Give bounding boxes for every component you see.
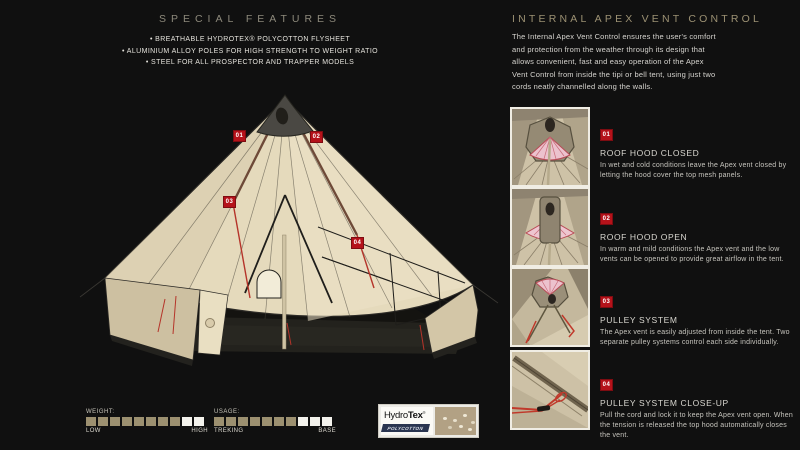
apex-vent-items: 01 ROOF HOOD CLOSED In wet and cold cond… [510, 107, 800, 430]
fabric-swatch-image [435, 407, 476, 435]
scale-square [122, 417, 132, 426]
vent-item-text: 02 ROOF HOOD OPEN In warm and mild condi… [600, 187, 795, 267]
item-badge-01: 01 [600, 129, 613, 141]
pulley-system-image [512, 269, 588, 345]
item-body: Pull the cord and lock it to keep the Ap… [600, 411, 795, 441]
item-badge-03: 03 [600, 296, 613, 308]
usage-ends: TREKING BASE [214, 428, 336, 434]
marker-04: 04 [351, 237, 364, 249]
apex-vent-intro: The Internal Apex Vent Control ensures t… [512, 31, 716, 94]
catalog-page: SPECIAL FEATURES BREATHABLE HYDROTEX® PO… [0, 0, 800, 450]
scale-square [86, 417, 96, 426]
scale-square [134, 417, 144, 426]
item-title: ROOF HOOD CLOSED [600, 148, 795, 158]
polycotton-banner: POLYCOTTON [381, 424, 430, 432]
scale-square [298, 417, 308, 426]
marker-03: 03 [223, 196, 236, 208]
roof-hood-closed-image [512, 109, 588, 185]
item-badge-02: 02 [600, 213, 613, 225]
item-body: In warm and mild conditions the Apex ven… [600, 245, 795, 265]
bell-tent-drawing [60, 85, 500, 400]
vent-item-pulley-system: 03 PULLEY SYSTEM The Apex vent is easily… [510, 267, 800, 347]
thumbnail-roof-hood-closed [510, 107, 590, 187]
vent-item-pulley-closeup: 04 PULLEY SYSTEM CLOSE-UP Pull the cord … [510, 350, 800, 430]
thumbnail-roof-hood-open [510, 187, 590, 267]
apex-vent-heading: INTERNAL APEX VENT CONTROL [512, 13, 762, 25]
usage-squares [214, 417, 336, 426]
marker-02: 02 [310, 131, 323, 143]
hydrotex-brand: HydroTex® [381, 407, 433, 421]
item-title: ROOF HOOD OPEN [600, 232, 795, 242]
hydrotex-logo-text-panel: HydroTex® POLYCOTTON [381, 407, 433, 435]
weight-scale: WEIGHT: LOW HIGH [86, 409, 208, 434]
thumbnail-pulley-closeup [510, 350, 590, 430]
water-droplets [443, 417, 447, 420]
item-badge-04: 04 [600, 379, 613, 391]
scale-square [110, 417, 120, 426]
weight-ends: LOW HIGH [86, 428, 208, 434]
item-body: The Apex vent is easily adjusted from in… [600, 328, 795, 348]
scale-square [158, 417, 168, 426]
item-title: PULLEY SYSTEM [600, 315, 795, 325]
usage-scale: USAGE: TREKING BASE [214, 409, 336, 434]
scale-square [322, 417, 332, 426]
item-title: PULLEY SYSTEM CLOSE-UP [600, 398, 795, 408]
usage-label: USAGE: [214, 409, 336, 415]
weight-label: WEIGHT: [86, 409, 208, 415]
scale-square [146, 417, 156, 426]
weight-low-label: LOW [86, 428, 101, 434]
thumbnail-pulley-system [510, 267, 590, 347]
vent-item-text: 04 PULLEY SYSTEM CLOSE-UP Pull the cord … [600, 350, 795, 430]
scale-square [226, 417, 236, 426]
roof-hood-open-image [512, 189, 588, 265]
marker-01: 01 [233, 130, 246, 142]
usage-high-label: BASE [318, 428, 336, 434]
scale-square [262, 417, 272, 426]
scale-square [214, 417, 224, 426]
scale-square [238, 417, 248, 426]
special-features-heading: SPECIAL FEATURES [0, 13, 500, 25]
feature-bullet: STEEL FOR ALL PROSPECTOR AND TRAPPER MOD… [0, 57, 500, 69]
scale-square [250, 417, 260, 426]
item-body: In wet and cold conditions leave the Ape… [600, 161, 795, 181]
feature-bullet: ALUMINIUM ALLOY POLES FOR HIGH STRENGTH … [0, 46, 500, 58]
vent-item-roof-hood-open: 02 ROOF HOOD OPEN In warm and mild condi… [510, 187, 800, 267]
vent-item-text: 03 PULLEY SYSTEM The Apex vent is easily… [600, 267, 795, 347]
special-features-list: BREATHABLE HYDROTEX® POLYCOTTON FLYSHEET… [0, 34, 500, 69]
scale-square [170, 417, 180, 426]
weight-high-label: HIGH [191, 428, 208, 434]
hydrotex-logo: HydroTex® POLYCOTTON [378, 404, 479, 438]
scale-square [194, 417, 204, 426]
scale-square [310, 417, 320, 426]
scale-square [274, 417, 284, 426]
usage-low-label: TREKING [214, 428, 243, 434]
pulley-closeup-image [512, 352, 588, 428]
scale-square [182, 417, 192, 426]
vent-item-text: 01 ROOF HOOD CLOSED In wet and cold cond… [600, 107, 795, 187]
scale-square [98, 417, 108, 426]
feature-bullet: BREATHABLE HYDROTEX® POLYCOTTON FLYSHEET [0, 34, 500, 46]
weight-squares [86, 417, 208, 426]
scale-square [286, 417, 296, 426]
bell-tent-illustration: 01 02 03 04 [60, 85, 500, 400]
vent-item-roof-hood-closed: 01 ROOF HOOD CLOSED In wet and cold cond… [510, 107, 800, 187]
